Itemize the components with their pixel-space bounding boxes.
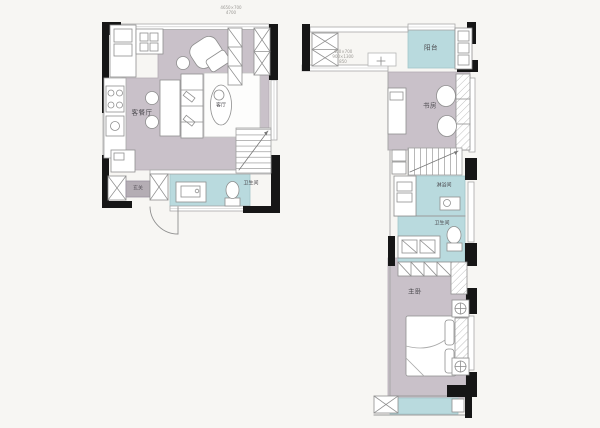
floor-plan-drawing <box>0 0 600 428</box>
first-floor-stairs <box>236 128 271 173</box>
toilet <box>226 182 239 199</box>
pillow <box>445 320 454 345</box>
floor-plan-canvas: 客餐厅 客厅 卫生间 玄关 阳台 书房 淋浴间 卫生间 主卧 4650×700 … <box>0 0 600 428</box>
label-master-bedroom: 主卧 <box>408 288 422 295</box>
dining-table <box>160 80 180 136</box>
dining-chair <box>146 92 159 105</box>
label-shower: 淋浴间 <box>436 183 451 189</box>
first-floor-plan <box>102 22 280 234</box>
decor-bowl <box>214 90 224 100</box>
second-floor-plan <box>302 22 478 418</box>
toilet-tank <box>225 198 240 206</box>
kitchen-counter-left <box>104 78 126 158</box>
label-living: 客厅 <box>216 103 226 109</box>
desk-chair <box>438 116 457 137</box>
vanity-sink <box>176 182 206 202</box>
label-bathroom-2: 卫生间 <box>434 221 449 227</box>
label-study: 书房 <box>423 102 437 109</box>
dimension-annotation: 850 <box>339 60 347 64</box>
second-floor-stairs <box>392 148 462 175</box>
toilet-tank-2 <box>447 243 462 251</box>
label-bathroom-1: 卫生间 <box>243 181 258 187</box>
balcony-unit <box>452 399 464 412</box>
label-living-dining: 客餐厅 <box>132 109 153 116</box>
double-vanity <box>398 236 440 258</box>
desk-chair <box>437 86 456 107</box>
toilet-2 <box>447 227 461 244</box>
shower-bench <box>440 197 460 210</box>
upper-corridor <box>312 33 396 66</box>
label-balcony: 阳台 <box>424 44 438 51</box>
dimension-annotation: 4700 <box>226 11 236 15</box>
label-entry: 玄关 <box>133 186 143 192</box>
dining-chair <box>146 116 159 129</box>
side-table <box>177 57 190 70</box>
threshold <box>368 53 396 66</box>
lower-balcony-floor <box>390 398 458 414</box>
balcony-cabinet-column <box>455 28 472 69</box>
